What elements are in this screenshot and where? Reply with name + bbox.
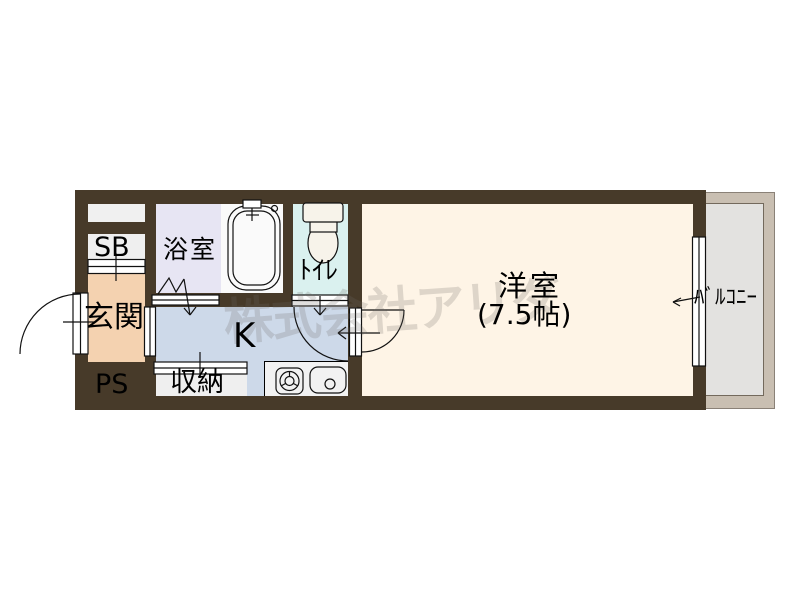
- entrance-kitchen-opening: [145, 307, 156, 356]
- bathroom-door: [152, 278, 219, 315]
- label-closet: 収納: [170, 369, 224, 396]
- label-entrance: 玄関: [84, 303, 144, 333]
- sink-icon: [310, 367, 346, 393]
- label-kitchen: K: [233, 319, 255, 353]
- label-shoe-box: SB: [94, 234, 130, 261]
- floor-plan: 株式会社アリダ SB 浴室 ﾄｲﾚ 玄関 K PS 収納 洋室 (7.5帖) ﾊ…: [0, 0, 800, 600]
- label-main-room-size: (7.5帖): [477, 301, 571, 329]
- label-main-room: 洋室: [498, 272, 562, 301]
- label-bathroom: 浴室: [163, 237, 217, 262]
- bathtub-icon: [228, 200, 280, 290]
- stove-icon: [276, 368, 303, 394]
- label-toilet: ﾄｲﾚ: [299, 258, 338, 284]
- label-balcony: ﾊﾞﾙｺﾆｰ: [694, 287, 757, 308]
- label-pipe-space: PS: [95, 371, 128, 398]
- toilet-icon: [303, 203, 343, 263]
